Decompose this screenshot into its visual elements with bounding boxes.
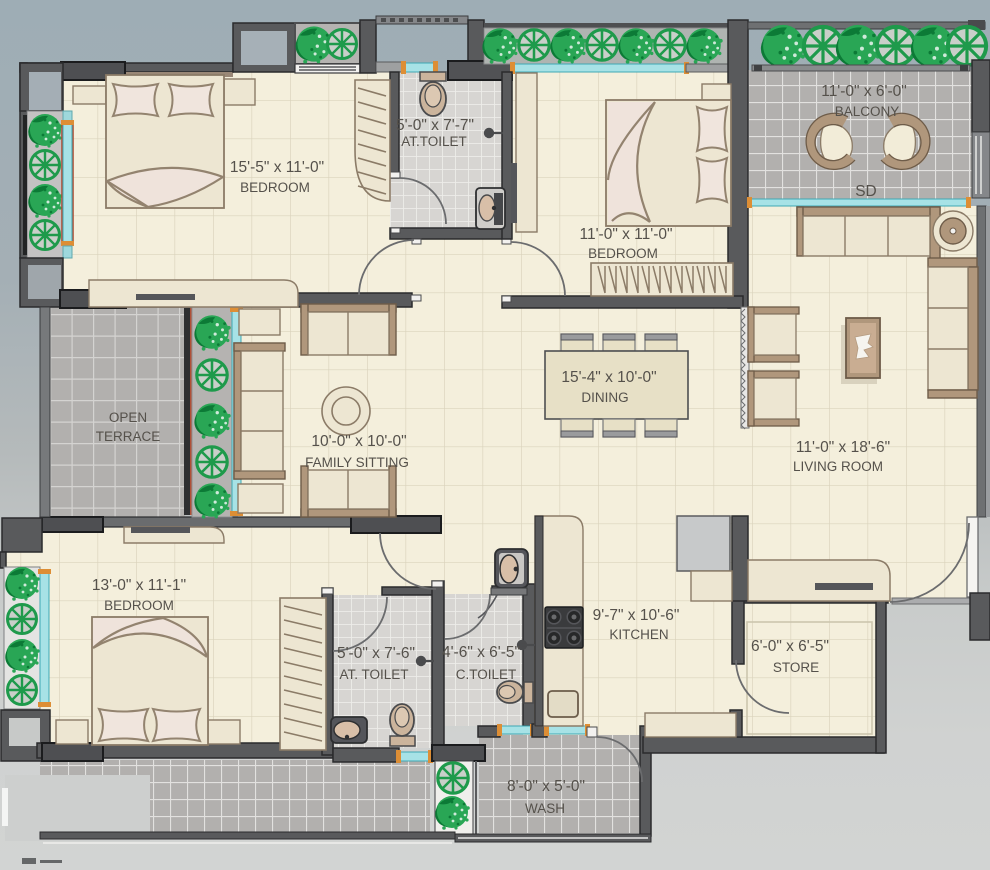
svg-text:11'-0" x 18'-6": 11'-0" x 18'-6" [796,439,890,456]
svg-text:BALCONY: BALCONY [835,104,900,119]
svg-text:OPEN: OPEN [109,410,147,425]
svg-text:6'-0" x 6'-5": 6'-0" x 6'-5" [751,638,829,655]
svg-text:BEDROOM: BEDROOM [588,246,658,261]
svg-text:LIVING ROOM: LIVING ROOM [793,459,883,474]
svg-text:10'-0" x 10'-0": 10'-0" x 10'-0" [311,433,406,450]
svg-text:SD: SD [855,183,877,200]
svg-text:15'-5" x 11'-0": 15'-5" x 11'-0" [230,159,324,176]
svg-text:AT.TOILET: AT.TOILET [401,134,467,149]
svg-text:STORE: STORE [773,660,819,675]
svg-text:15'-4" x 10'-0": 15'-4" x 10'-0" [561,369,656,386]
svg-text:11'-0" x 6'-0": 11'-0" x 6'-0" [821,83,907,100]
svg-text:TERRACE: TERRACE [96,429,161,444]
svg-text:5'-0" x 7'-7": 5'-0" x 7'-7" [396,117,474,134]
svg-text:C.TOILET: C.TOILET [456,667,517,682]
svg-text:4'-6" x 6'-5": 4'-6" x 6'-5" [442,644,520,661]
svg-text:8'-0" x 5'-0": 8'-0" x 5'-0" [507,778,585,795]
svg-text:11'-0" x 11'-0": 11'-0" x 11'-0" [579,226,672,243]
svg-text:BEDROOM: BEDROOM [240,180,310,195]
svg-text:BEDROOM: BEDROOM [104,598,174,613]
svg-text:WASH: WASH [525,801,565,816]
svg-text:KITCHEN: KITCHEN [609,627,668,642]
svg-text:5'-0" x 7'-6": 5'-0" x 7'-6" [337,645,415,662]
svg-text:13'-0" x 11'-1": 13'-0" x 11'-1" [92,577,186,594]
svg-text:DINING: DINING [581,390,628,405]
svg-text:9'-7" x 10'-6": 9'-7" x 10'-6" [593,607,680,624]
svg-text:FAMILY SITTING: FAMILY SITTING [305,455,409,470]
svg-text:AT. TOILET: AT. TOILET [339,667,408,682]
